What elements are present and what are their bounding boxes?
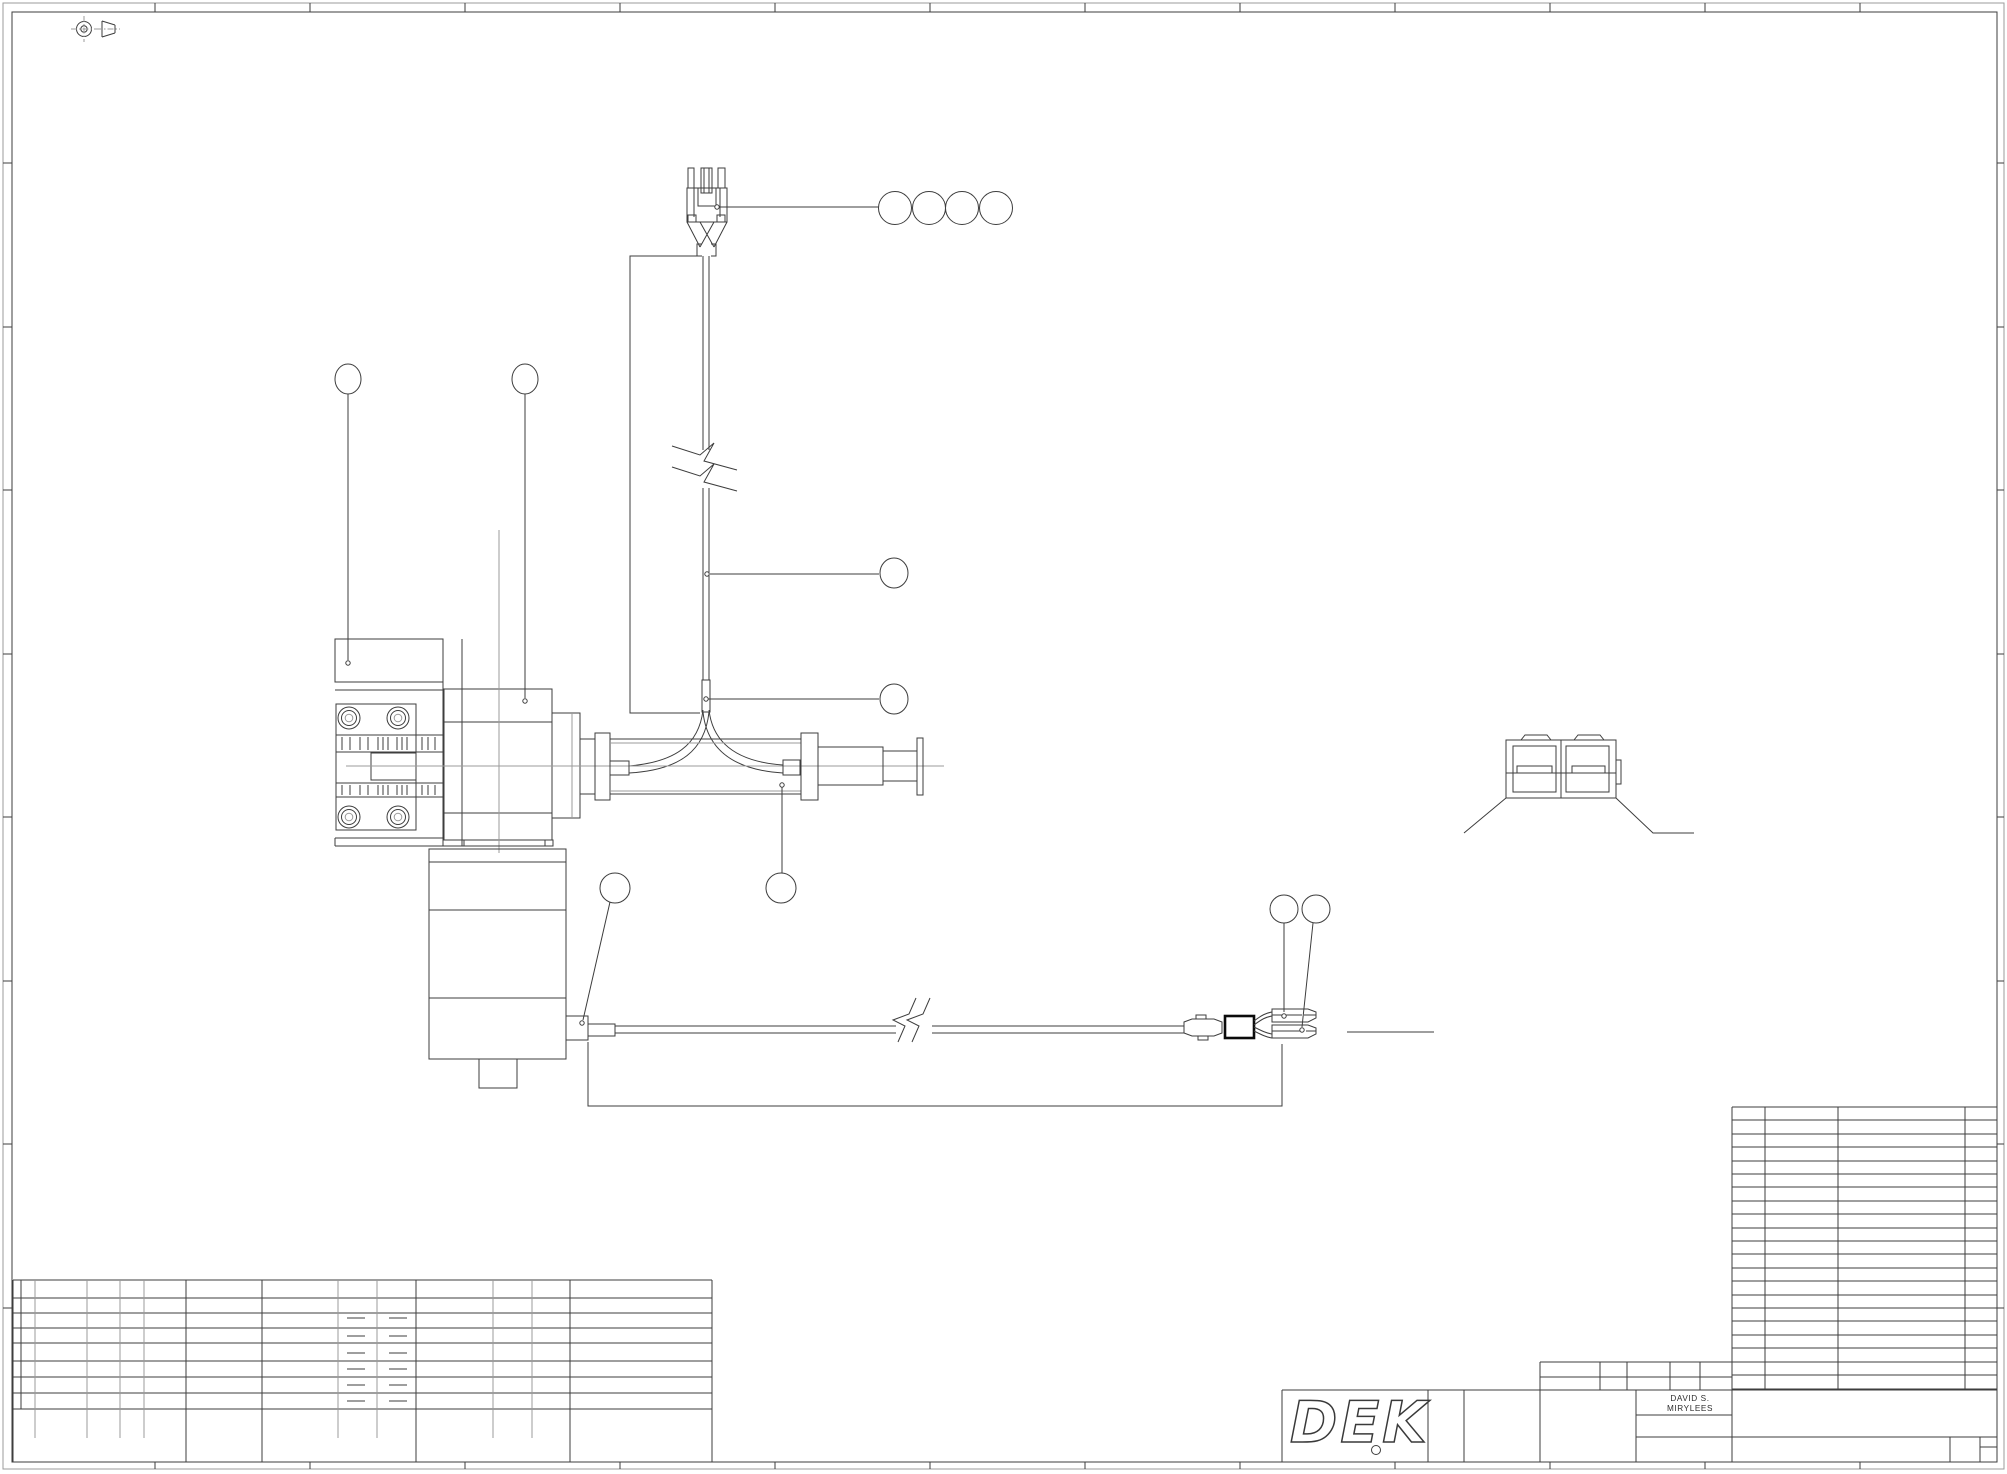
balloon-callout [880, 558, 908, 588]
cable-break-icon [672, 443, 737, 491]
cable-ferrule [1184, 1015, 1222, 1040]
balloon-callout [1270, 895, 1298, 923]
balloon-callout [980, 192, 1013, 225]
motor-gearbox-assembly [335, 530, 615, 1088]
drawn-by-name-line2: MIRYLEES [1667, 1404, 1713, 1413]
balloon-callout [913, 192, 946, 225]
cable-break-icon [893, 998, 930, 1042]
balloon-callout [946, 192, 979, 225]
spade-terminal [1272, 1009, 1316, 1022]
balloon-callout [766, 873, 796, 903]
mounting-boss [338, 707, 409, 828]
drawn-by-name-line1: DAVID S. [1670, 1394, 1709, 1403]
balloon-callout [600, 873, 630, 903]
balloon-callout [512, 364, 538, 394]
lower-cable [588, 998, 1434, 1106]
title-block: DEK DAVID S. MIRYLEES [1282, 1362, 1997, 1462]
balloon-callout [1302, 895, 1330, 923]
heatshrink-block [1225, 1016, 1254, 1038]
balloon-callouts [335, 192, 1330, 1033]
balloon-callout [879, 192, 912, 225]
balloon-callout [880, 684, 908, 714]
parts-table [1732, 1107, 1997, 1462]
top-cable [629, 256, 783, 773]
dek-logo: DEK [1290, 1390, 1430, 1456]
first-angle-projection-icon [71, 16, 120, 42]
balloon-callout [335, 364, 361, 394]
revision-table [13, 1280, 712, 1462]
drawing-sheet: DEK DAVID S. MIRYLEES [0, 0, 2007, 1474]
top-connector [687, 168, 727, 256]
dek-logo-text: DEK [1290, 1390, 1430, 1456]
leadscrew-assembly [346, 733, 944, 800]
terminal-block-component [1464, 735, 1694, 833]
drawing-canvas: DEK DAVID S. MIRYLEES [0, 0, 2007, 1474]
spade-terminal [1272, 1025, 1316, 1038]
